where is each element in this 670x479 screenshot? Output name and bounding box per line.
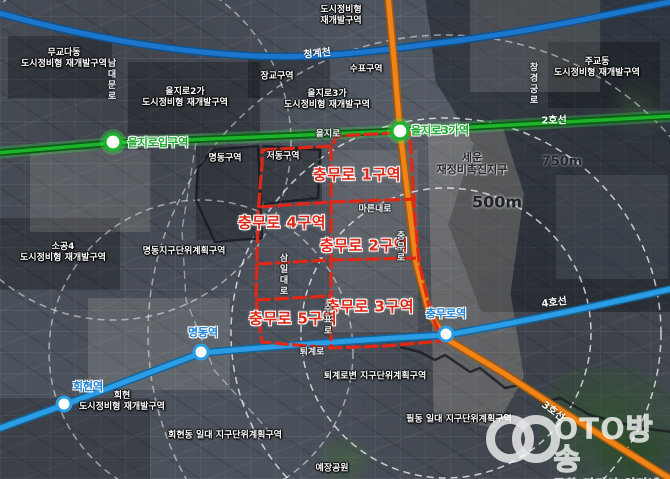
station-label-chungmuro: 충무로역 xyxy=(426,305,466,321)
watermark-logo-icon xyxy=(486,414,548,464)
zone-hoehyeon: 회현도시정비형 재개발구역 xyxy=(79,391,165,413)
zone-top-redevelopment: 도시정비형재개발구역 xyxy=(320,5,361,27)
line-4-label: 4호선 xyxy=(541,292,568,310)
zone-janggyo: 장교구역 xyxy=(260,72,293,83)
road-mareunnae-ro: 마른내로 xyxy=(358,202,391,215)
zone-sewoon-district: 세운재정비촉진지구 xyxy=(437,152,508,176)
watermark: OTO방송 종합 미디어 인터넷 방송 xyxy=(486,414,670,479)
zone-toegyero-plan: 퇴계로변 지구단위계획구역 xyxy=(324,372,427,383)
zone-euljiro-3ga: 을지로3가도시정비형 재개발구역 xyxy=(284,89,370,111)
road-samil-daero: 삼일대로 xyxy=(277,253,290,297)
road-namdaemun-ro: 남대문로 xyxy=(105,58,118,102)
zone-jugyo-dong: 주교동도시정비형 재개발구역 xyxy=(554,57,640,79)
station-label-euljiro-ipgu: 을지로입구역 xyxy=(128,134,189,150)
radius-500m: 500m xyxy=(472,193,522,212)
map-label-layer: 무교다동도시정비형 재개발구역도시정비형재개발구역을지로2가도시정비형 재개발구… xyxy=(0,0,670,479)
zone-myeongdong-district-plan: 명동지구단위계획구역 xyxy=(143,247,226,258)
stream-label-cheonggyecheon: 청계천 xyxy=(302,43,331,61)
road-toegye-ro: 퇴계로 xyxy=(300,345,325,358)
line-2-label: 2호선 xyxy=(541,112,566,127)
zone-sogong4: 소공4도시정비형 재개발구역 xyxy=(20,242,106,264)
zone-chungmuro-3: 충무로 3구역 xyxy=(326,296,414,317)
watermark-tagline: 종합 미디어 인터넷 방송 xyxy=(554,475,670,479)
radius-750m: 750m xyxy=(542,155,583,170)
watermark-brand: OTO방송 xyxy=(554,414,670,474)
road-chungmuro: 충무로 xyxy=(394,231,407,264)
road-supyo-ro: 수표로 xyxy=(321,304,334,337)
station-label-hoehyeon: 회현역 xyxy=(73,378,103,394)
zone-hoehyeon-area-plan: 회현동 일대 지구단위계획구역 xyxy=(168,431,282,442)
zone-chungmuro-4: 충무로 4구역 xyxy=(238,212,326,233)
zone-myeongdong: 명동구역 xyxy=(208,154,241,165)
zone-jeodong: 저동구역 xyxy=(266,152,299,163)
yejang-park: 예장공원 xyxy=(315,464,348,475)
zone-mugyo-dadong: 무교다동도시정비형 재개발구역 xyxy=(21,48,107,70)
zone-supyo: 수표구역 xyxy=(349,65,382,76)
satellite-map[interactable]: 무교다동도시정비형 재개발구역도시정비형재개발구역을지로2가도시정비형 재개발구… xyxy=(0,0,670,479)
station-label-myeongdong: 명동역 xyxy=(188,324,218,340)
road-euljiro: 을지로 xyxy=(316,127,341,140)
zone-chungmuro-1: 충무로 1구역 xyxy=(313,164,401,185)
zone-euljiro-2ga: 을지로2가도시정비형 재개발구역 xyxy=(142,87,228,109)
road-changgyeonggung-ro: 창경궁로 xyxy=(527,62,540,106)
station-label-euljiro-3ga: 을지로3가역 xyxy=(411,122,469,138)
